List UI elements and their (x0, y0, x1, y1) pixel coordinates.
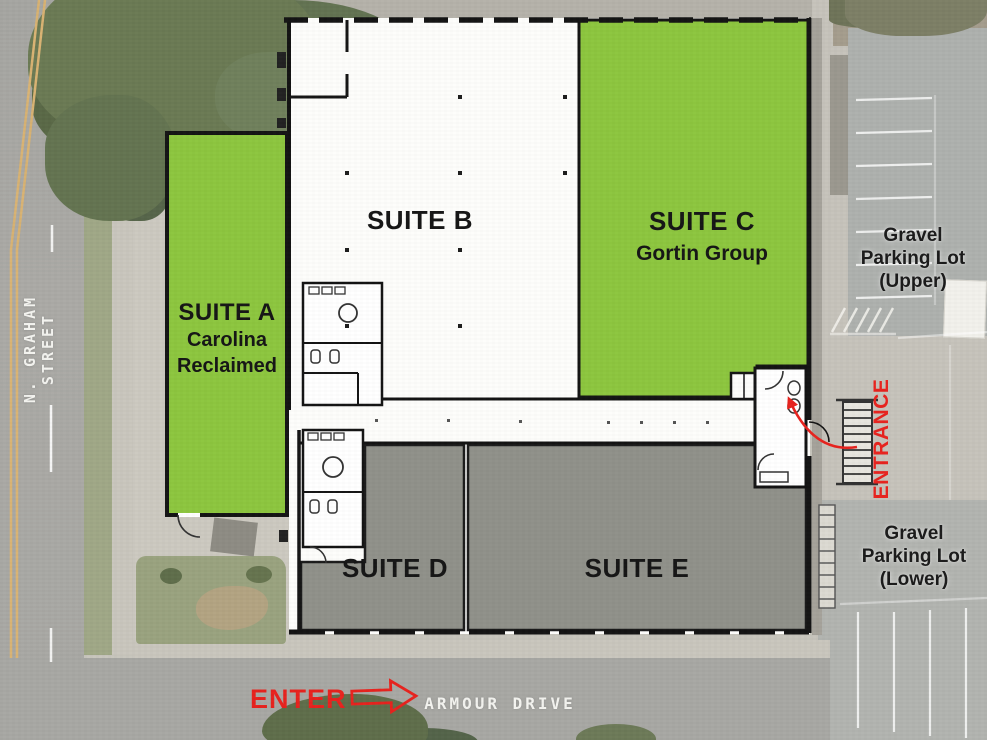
street-label-graham-text: N. GRAHAM STREET (21, 295, 57, 403)
floor-plan-svg (0, 0, 987, 740)
suite-e-title: SUITE E (557, 554, 717, 582)
entrance-label: ENTRANCE (870, 374, 894, 504)
street-label-graham: N. GRAHAM STREET (21, 254, 57, 444)
parking-upper-line1: Gravel (842, 224, 984, 247)
suite-a-tenant-line1: Carolina (165, 327, 289, 353)
parking-upper-line2: Parking Lot (842, 247, 984, 270)
suite-c-label-group: SUITE C Gortin Group (612, 207, 792, 267)
parking-lower-line2: Parking Lot (843, 545, 985, 568)
restroom-block-1 (303, 283, 382, 405)
parking-lower-label: Gravel Parking Lot (Lower) (843, 522, 985, 591)
parking-upper-line3: (Upper) (842, 270, 984, 293)
entrance-vestibule (755, 368, 806, 487)
parking-lower-line3: (Lower) (843, 568, 985, 591)
suite-a-title: SUITE A (165, 299, 289, 327)
suite-c-title: SUITE C (612, 207, 792, 235)
enter-arrow (351, 680, 416, 713)
side-ramp (819, 505, 835, 608)
hatched-ramp (830, 308, 896, 334)
suite-a-label-group: SUITE A Carolina Reclaimed (165, 299, 289, 379)
parking-upper-label: Gravel Parking Lot (Upper) (842, 224, 984, 293)
suite-a-door (178, 515, 200, 537)
suite-a-tenant-line2: Reclaimed (165, 353, 289, 379)
restroom-block-2 (303, 430, 363, 563)
suite-b-title: SUITE B (340, 206, 500, 234)
parking-lines-lower (840, 598, 987, 738)
site-plan-map: N. GRAHAM STREET SUITE A Carolina Reclai… (0, 0, 987, 740)
enter-label: ENTER (250, 684, 346, 715)
suite-d-title: SUITE D (315, 554, 475, 582)
parking-lower-line1: Gravel (843, 522, 985, 545)
suite-c-tenant: Gortin Group (612, 241, 792, 267)
street-label-armour: ARMOUR DRIVE (424, 694, 576, 713)
